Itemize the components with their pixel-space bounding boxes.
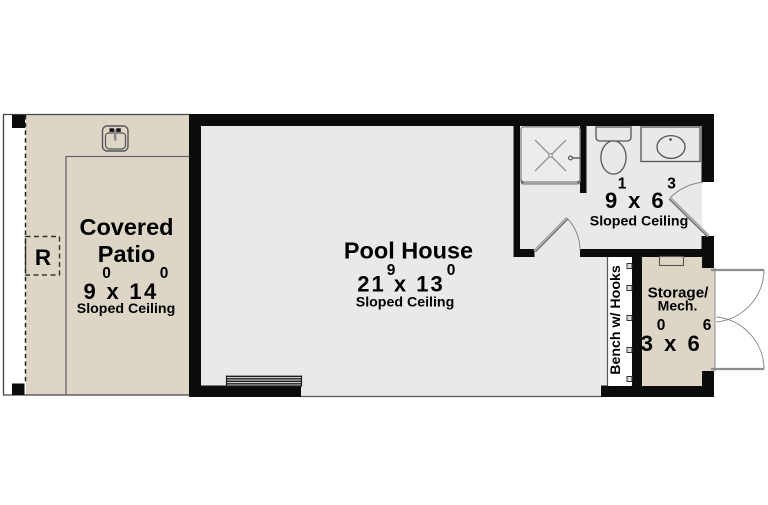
svg-text:Sloped Ceiling: Sloped Ceiling [356,295,455,311]
svg-text:Pool House: Pool House [344,238,473,264]
svg-text:Mech.: Mech. [658,298,698,314]
svg-text:0: 0 [447,262,456,279]
svg-text:0: 0 [160,265,169,282]
svg-text:3 x 6: 3 x 6 [641,331,702,356]
svg-text:Sloped Ceiling: Sloped Ceiling [590,214,689,230]
svg-text:3: 3 [667,176,676,193]
svg-text:21 x 13: 21 x 13 [357,272,444,297]
svg-text:Covered: Covered [79,214,173,240]
svg-text:Sloped Ceiling: Sloped Ceiling [77,301,176,317]
svg-text:R: R [35,245,51,270]
svg-text:9 x 6: 9 x 6 [605,188,666,213]
svg-text:6: 6 [703,317,712,334]
svg-text:Bench w/ Hooks: Bench w/ Hooks [608,265,624,375]
svg-text:Patio: Patio [98,241,155,267]
